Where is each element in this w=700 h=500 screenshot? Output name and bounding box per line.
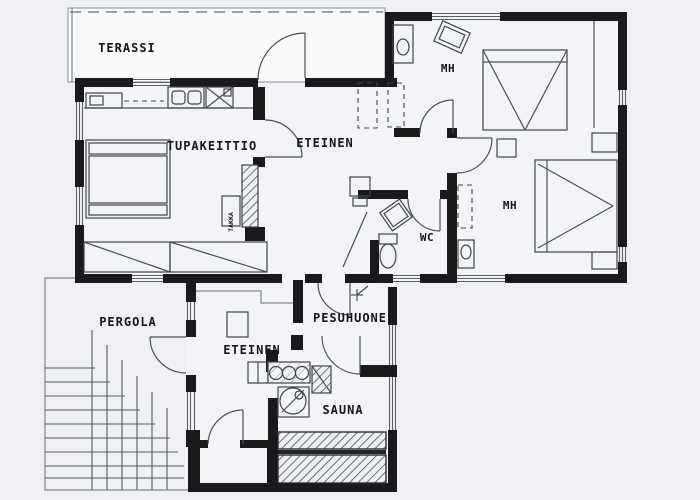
room-label-tupakeittio: TUPAKEITTIO (167, 139, 257, 153)
room-label-terassi: TERASSI (98, 41, 156, 55)
room-label-eteinen-lower: ETEINEN (223, 343, 281, 357)
room-label-mh-top: MH (441, 62, 455, 75)
entrance-door (150, 337, 186, 373)
sauna-benches (278, 432, 386, 483)
upper-left-unit-floor (75, 78, 397, 283)
pergola-boundary (45, 278, 196, 490)
room-label-mh-right: MH (503, 199, 517, 212)
room-label-sauna: SAUNA (322, 403, 363, 417)
sauna-stove (312, 366, 331, 393)
room-label-eteinen-upper: ETEINEN (296, 136, 354, 150)
floor-plan-drawing: TERASSI TUPAKEITTIO ETEINEN MH MH WC PER… (0, 0, 700, 500)
fixture-label-takka: TAKKA (227, 212, 235, 232)
room-label-wc: WC (420, 231, 434, 244)
pergola-trellis (45, 330, 184, 490)
room-label-pesuhuone: PESUHUONE (313, 311, 387, 325)
floor-plan-page: TERASSI TUPAKEITTIO ETEINEN MH MH WC PER… (0, 0, 700, 500)
room-label-pergola: PERGOLA (99, 315, 157, 329)
